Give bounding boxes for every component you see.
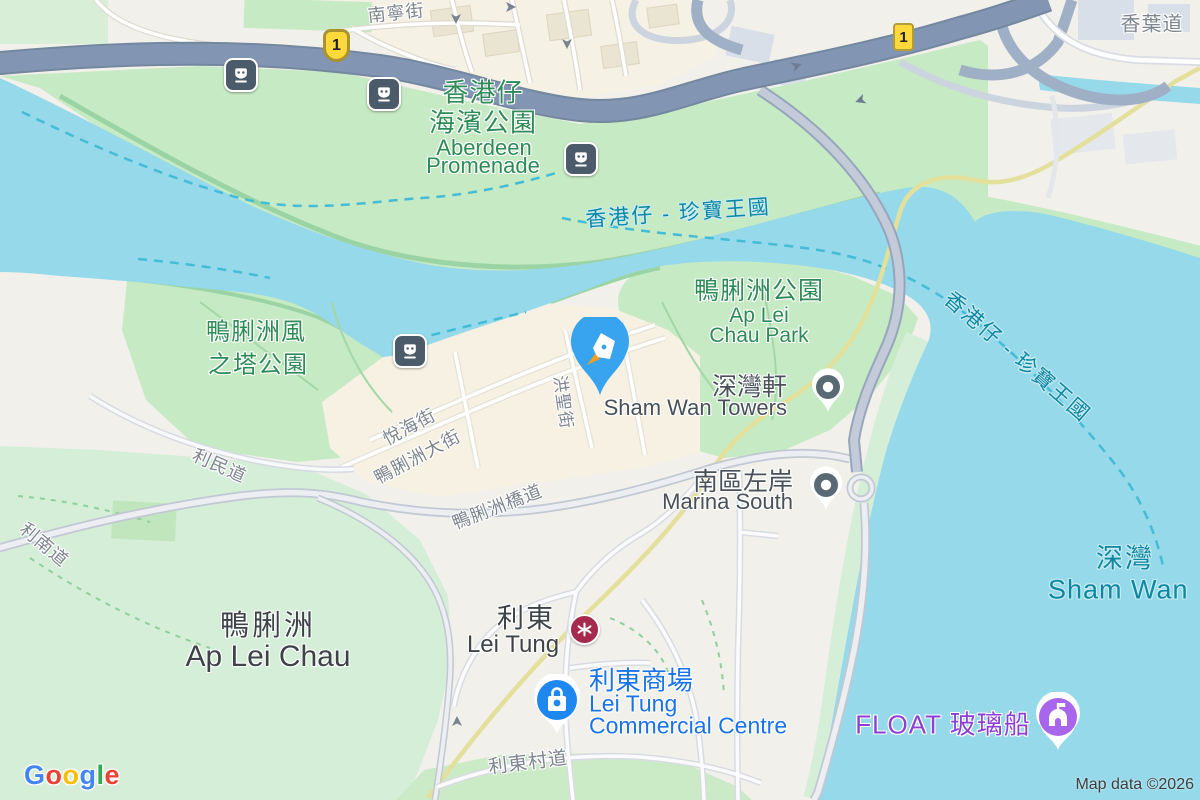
google-logo-letter: l: [97, 760, 105, 790]
google-logo[interactable]: Google: [24, 760, 120, 791]
water-label-sham-wan-en: Sham Wan: [1048, 575, 1189, 606]
route-1-shield: 1: [323, 29, 350, 62]
poi-dot-pin[interactable]: [807, 466, 845, 517]
street-label-hong-yip: 香葉道: [1121, 8, 1184, 37]
place-label-ap-lei-chau-zh: 鴨脷洲: [220, 602, 316, 644]
route-1-shield: 1: [893, 23, 914, 51]
park-label-alc-park-zh: 鴨脷洲公園: [694, 271, 824, 307]
park-label-alc-park-en2: Chau Park: [709, 324, 808, 348]
google-logo-letter: g: [80, 760, 97, 790]
route-number: 1: [899, 29, 907, 46]
mtr-station-icon[interactable]: [569, 614, 600, 645]
green-patch: [0, 0, 108, 44]
park-label-promenade-zh2: 海濱公園: [429, 103, 537, 140]
google-logo-letter: e: [105, 760, 121, 790]
ferry-station-icon[interactable]: [564, 142, 598, 176]
park-label-wind-tower-zh2: 之塔公園: [208, 345, 308, 380]
poi-label-float-boat[interactable]: FLOAT 玻璃船: [855, 705, 1031, 742]
google-logo-letter: G: [24, 760, 46, 790]
ferry-station-icon[interactable]: [224, 58, 258, 92]
poi-label-sham-wan-towers-en[interactable]: Sham Wan Towers: [604, 395, 787, 421]
poi-label-lt-commercial-en2[interactable]: Commercial Centre: [589, 713, 787, 740]
route-number: 1: [332, 37, 341, 55]
google-logo-letter: o: [63, 760, 80, 790]
place-label-ap-lei-chau-en: Ap Lei Chau: [185, 640, 350, 674]
poi-label-marina-south-en[interactable]: Marina South: [662, 489, 793, 515]
map-attribution: Map data ©2026: [1075, 776, 1194, 794]
google-logo-letter: o: [46, 760, 63, 790]
google-maps-canvas[interactable]: { "map": { "attribution": "Map data ©202…: [0, 0, 1200, 800]
attraction-landmark-pin[interactable]: [1032, 692, 1084, 757]
selected-place-pin[interactable]: [567, 317, 633, 402]
station-label-lei-tung-zh[interactable]: 利東: [497, 597, 555, 636]
park-label-promenade-en2: Promenade: [426, 153, 540, 179]
station-label-lei-tung-en[interactable]: Lei Tung: [467, 631, 559, 659]
poi-dot-pin[interactable]: [809, 368, 847, 419]
ferry-station-icon[interactable]: [367, 77, 401, 111]
ferry-station-icon[interactable]: [393, 334, 427, 368]
shopping-bag-pin[interactable]: [531, 674, 583, 741]
park-label-wind-tower-zh1: 鴨脷洲風: [206, 312, 306, 347]
water-label-sham-wan-zh: 深灣: [1096, 537, 1154, 576]
